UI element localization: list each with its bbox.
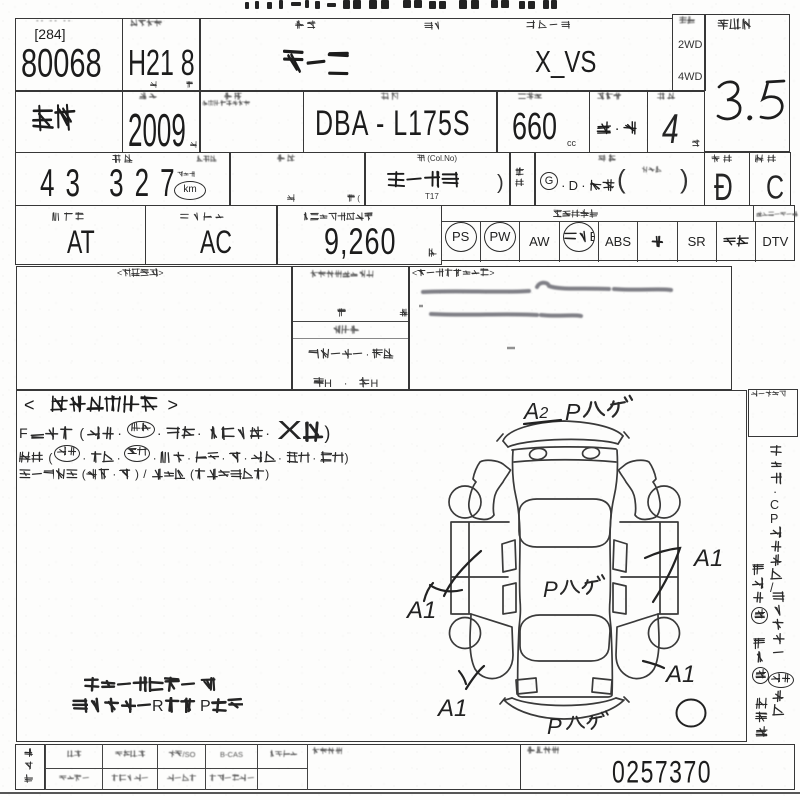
- svg-text:P: P: [565, 399, 581, 425]
- svg-text:P: P: [543, 577, 558, 602]
- svg-text:A1: A1: [436, 695, 467, 722]
- svg-text:A1: A1: [405, 597, 436, 624]
- svg-text:A1: A1: [692, 545, 723, 572]
- svg-text:A1: A1: [664, 661, 695, 688]
- svg-text:P: P: [547, 714, 562, 739]
- svg-text:A2: A2: [522, 398, 548, 424]
